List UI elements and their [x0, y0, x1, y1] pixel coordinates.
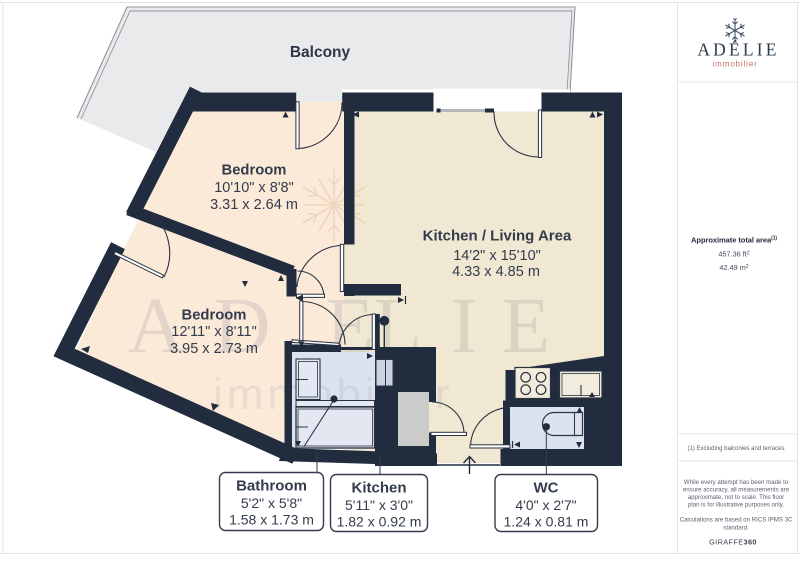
- svg-text:Calculations are based on RICS: Calculations are based on RICS IPMS 3C: [680, 517, 793, 524]
- svg-text:3.95 x 2.73 m: 3.95 x 2.73 m: [170, 341, 258, 357]
- svg-text:standard.: standard.: [723, 525, 749, 532]
- svg-text:42.49 m2: 42.49 m2: [719, 263, 748, 272]
- svg-text:1.82 x 0.92 m: 1.82 x 0.92 m: [337, 514, 422, 530]
- svg-text:5'2" x 5'8": 5'2" x 5'8": [241, 495, 302, 511]
- svg-text:3.31 x 2.64 m: 3.31 x 2.64 m: [210, 197, 298, 213]
- svg-text:1.58 x 1.73 m: 1.58 x 1.73 m: [229, 512, 314, 528]
- svg-text:14'2" x 15'10": 14'2" x 15'10": [453, 248, 541, 264]
- svg-text:Approximate total area(1): Approximate total area(1): [691, 236, 777, 245]
- svg-text:ADÉLIE: ADÉLIE: [697, 40, 779, 60]
- svg-text:plan is for illustrative purpo: plan is for illustrative purposes only.: [688, 502, 784, 509]
- svg-text:Balcony: Balcony: [290, 44, 351, 61]
- svg-text:approximate, not to scale. Thi: approximate, not to scale. This floor: [688, 494, 784, 501]
- svg-text:Bedroom: Bedroom: [222, 163, 287, 179]
- svg-text:Bedroom: Bedroom: [182, 308, 247, 324]
- svg-text:While every attempt has been m: While every attempt has been made to: [684, 479, 789, 486]
- svg-text:GIRAFFE360: GIRAFFE360: [709, 538, 757, 547]
- svg-text:4'0" x 2'7": 4'0" x 2'7": [515, 497, 576, 513]
- svg-text:E: E: [502, 283, 550, 370]
- svg-text:WC: WC: [534, 480, 559, 497]
- svg-text:Kitchen / Living Area: Kitchen / Living Area: [423, 228, 572, 245]
- svg-text:4.33 x 4.85 m: 4.33 x 4.85 m: [452, 264, 540, 280]
- svg-text:12'11" x 8'11": 12'11" x 8'11": [171, 324, 256, 340]
- svg-text:I: I: [451, 283, 477, 370]
- svg-text:immobilier: immobilier: [712, 60, 757, 69]
- svg-text:5'11" x 3'0": 5'11" x 3'0": [345, 497, 413, 513]
- svg-text:10'10" x 8'8": 10'10" x 8'8": [214, 180, 294, 196]
- svg-text:1.24 x 0.81 m: 1.24 x 0.81 m: [504, 514, 589, 530]
- svg-text:Bathroom: Bathroom: [236, 478, 307, 495]
- svg-text:É: É: [326, 283, 374, 370]
- svg-text:ensure accuracy, all measureme: ensure accuracy, all measurements are: [683, 487, 790, 494]
- svg-text:(1) Excluding balconies and te: (1) Excluding balconies and terraces: [687, 446, 784, 452]
- svg-text:457.36 ft2: 457.36 ft2: [718, 250, 749, 259]
- svg-text:Kitchen: Kitchen: [351, 480, 406, 497]
